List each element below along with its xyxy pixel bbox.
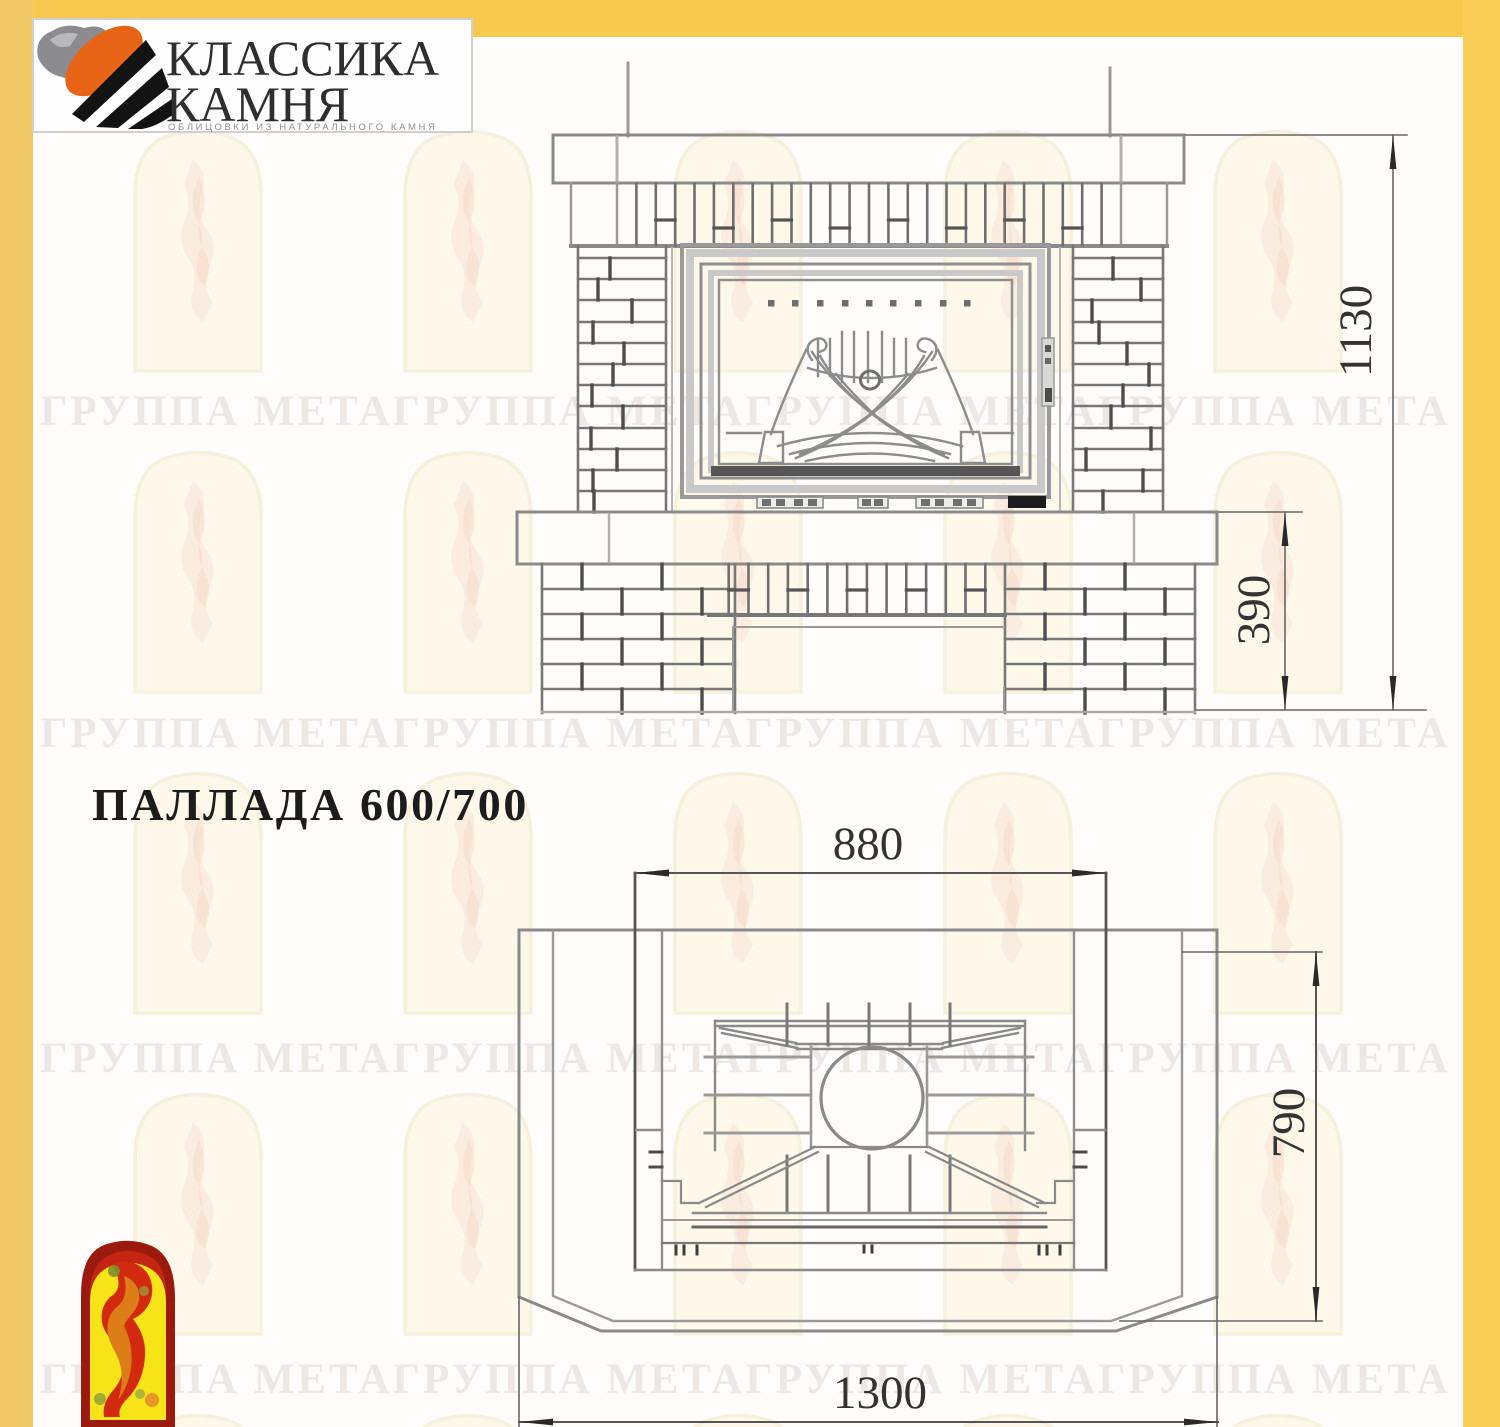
- svg-text:790: 790: [1263, 1088, 1315, 1159]
- svg-text:1130: 1130: [1330, 285, 1382, 377]
- svg-text:ОБЛИЦОВКИ ИЗ НАТУРАЛЬНОГО КАМН: ОБЛИЦОВКИ ИЗ НАТУРАЛЬНОГО КАМНЯ: [168, 122, 437, 133]
- svg-text:ГРУППА МЕТАГРУППА МЕТАГРУППА М: ГРУППА МЕТАГРУППА МЕТАГРУППА МЕТАГРУППА …: [40, 1356, 1451, 1403]
- svg-text:880: 880: [833, 818, 904, 870]
- svg-text:390: 390: [1228, 575, 1280, 646]
- svg-text:ГРУППА МЕТАГРУППА МЕТАГРУППА М: ГРУППА МЕТАГРУППА МЕТАГРУППА МЕТАГРУППА …: [40, 388, 1451, 435]
- svg-text:1300: 1300: [833, 1367, 927, 1419]
- svg-text:ПАЛЛАДА 600/700: ПАЛЛАДА 600/700: [92, 779, 529, 830]
- svg-text:ГРУППА МЕТАГРУППА МЕТАГРУППА М: ГРУППА МЕТАГРУППА МЕТАГРУППА МЕТАГРУППА …: [40, 710, 1451, 757]
